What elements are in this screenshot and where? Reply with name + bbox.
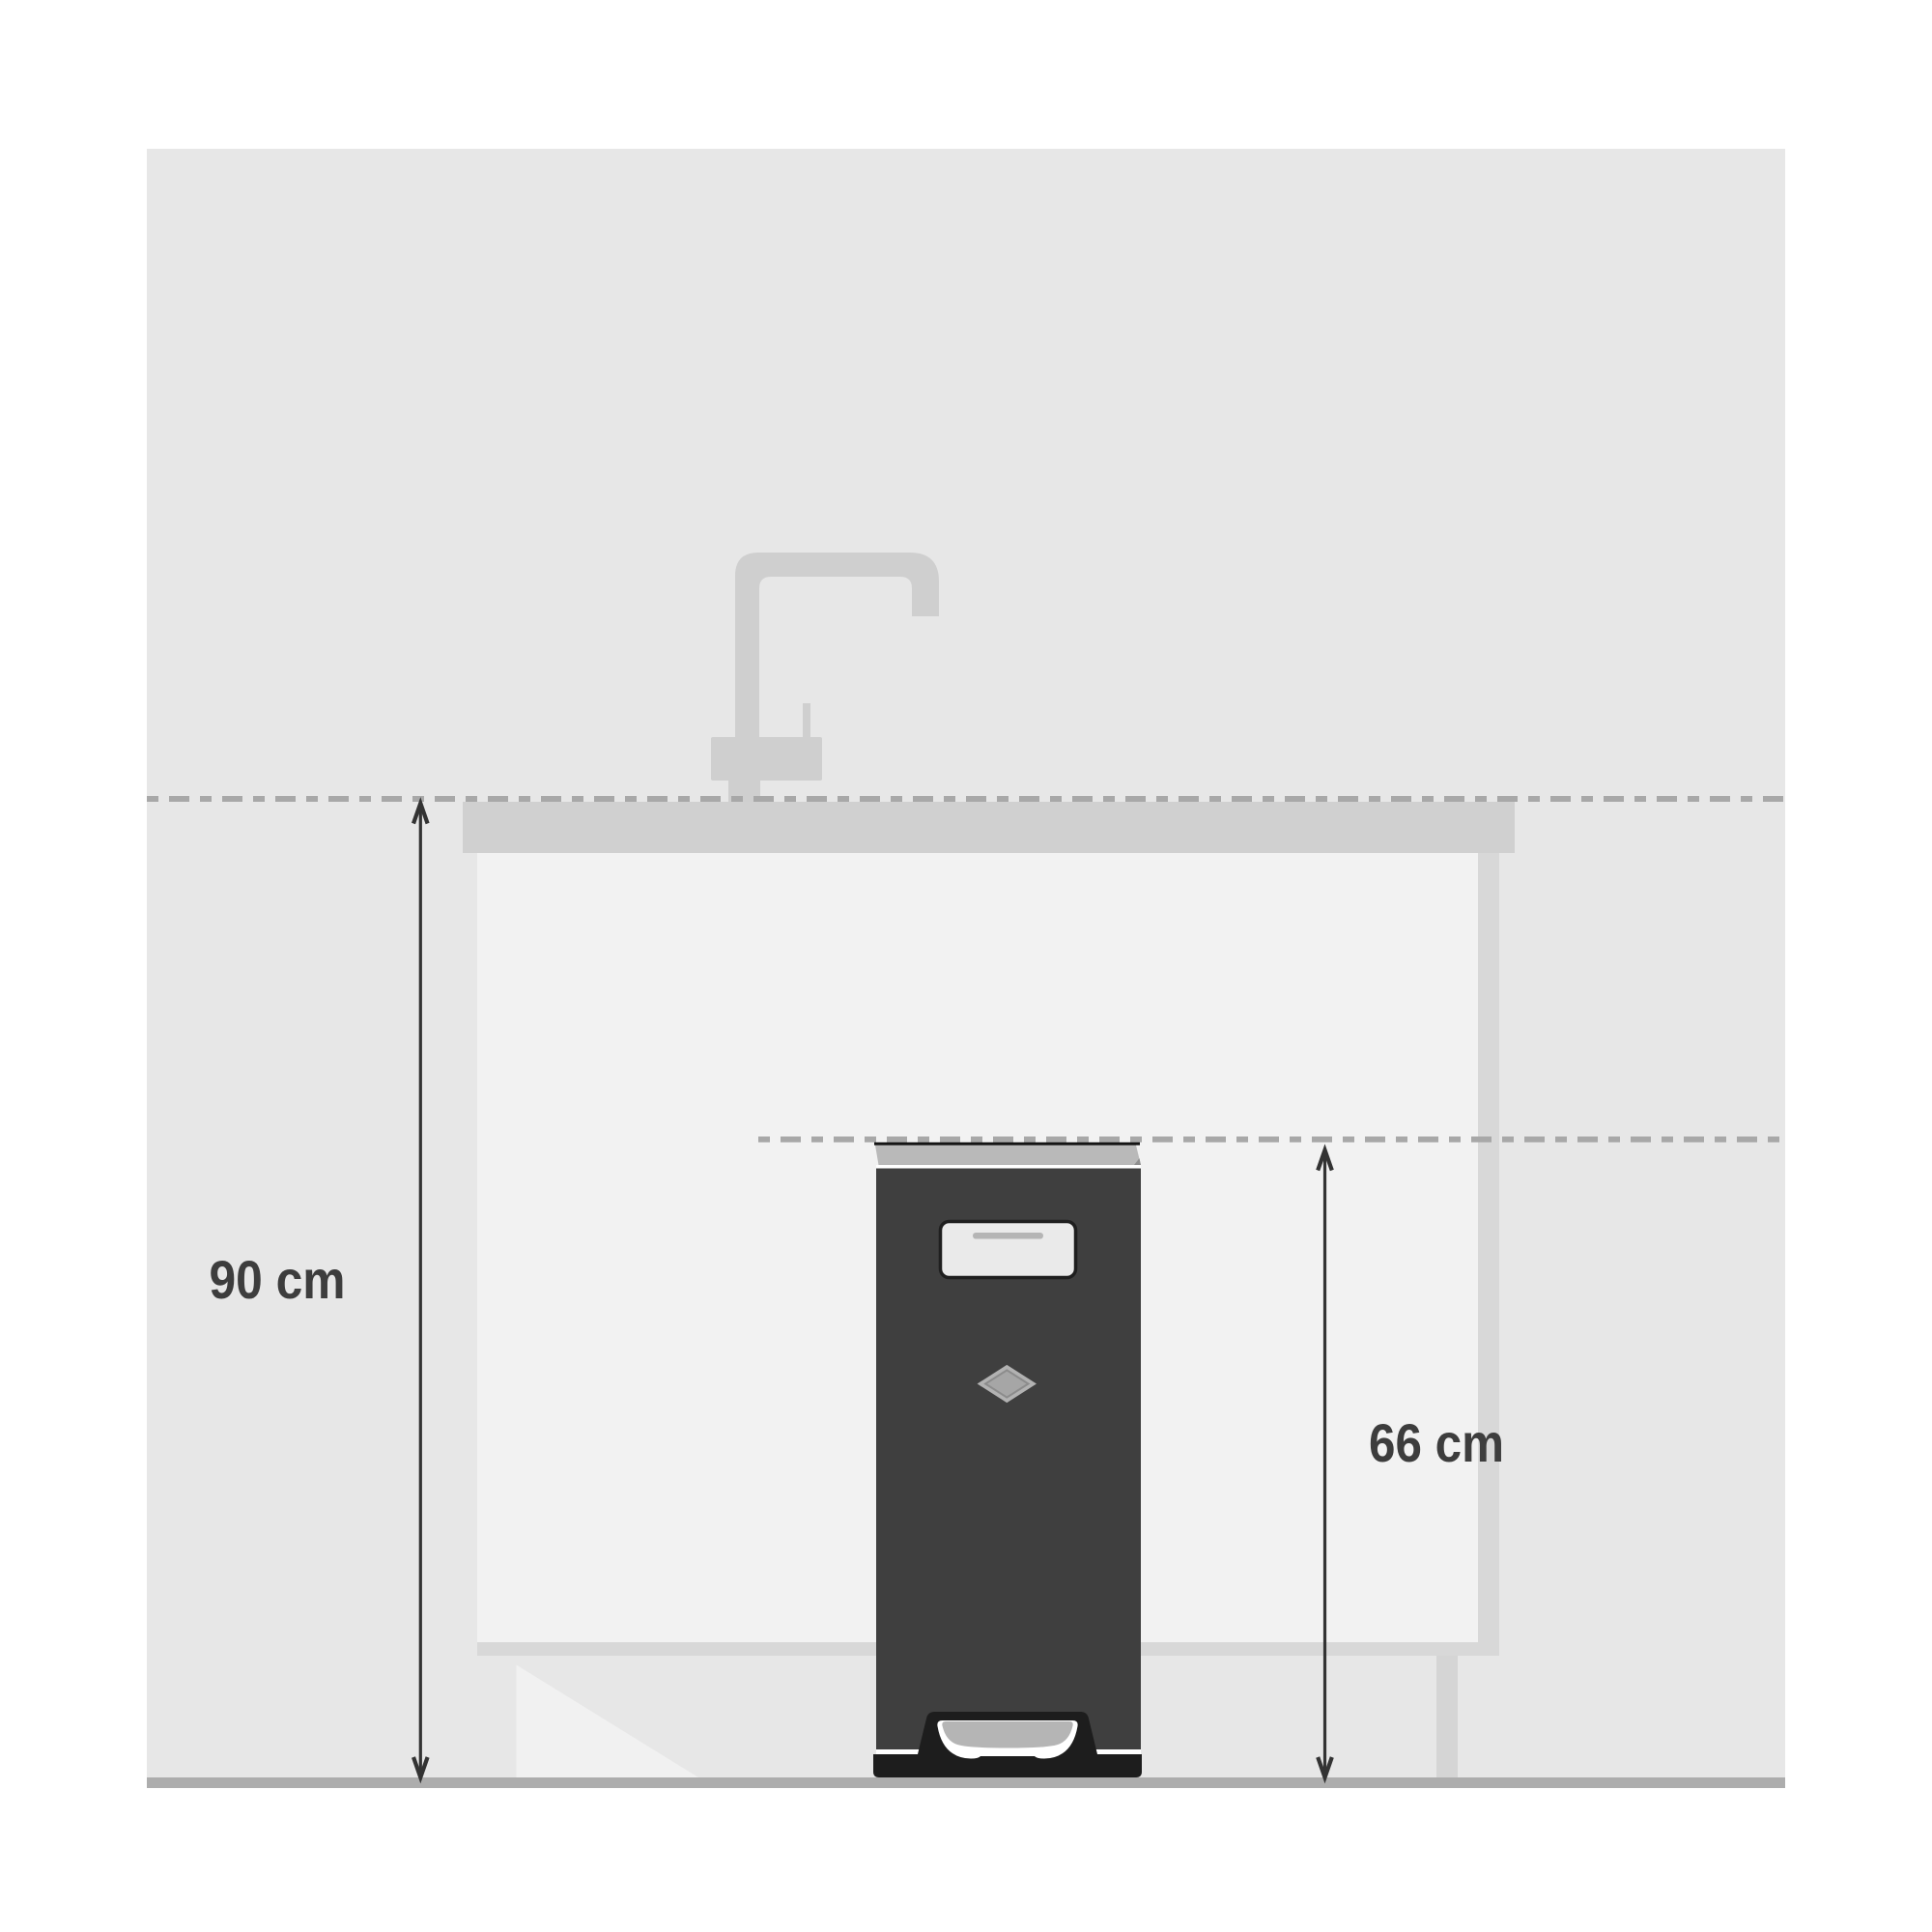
- svg-text:90 cm: 90 cm: [210, 1249, 346, 1310]
- svg-text:66 cm: 66 cm: [1369, 1412, 1504, 1473]
